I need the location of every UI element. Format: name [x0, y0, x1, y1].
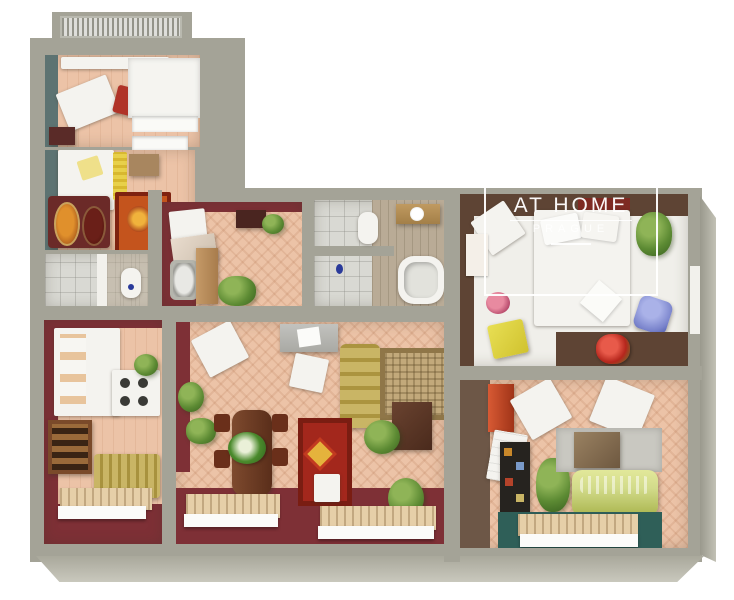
kitchen-plant [134, 354, 158, 376]
wall-living-right [444, 188, 460, 562]
dresser-mirror-2 [82, 206, 106, 246]
office-green-sofa [572, 470, 658, 516]
floorplan-render: AT HOME PRAGUE [0, 0, 734, 600]
shelf-item-4 [516, 494, 524, 502]
shelf-item-1 [504, 448, 512, 456]
wall-kitchen-living [162, 320, 176, 544]
room-bathroom [314, 200, 446, 307]
wall-hallway-bathroom [302, 196, 314, 308]
office-wall-cabinet [574, 432, 620, 468]
stove-burner-2 [138, 378, 148, 388]
wall-bedroom-office [452, 366, 702, 380]
living-sill-left [184, 514, 278, 527]
bedroom-main-red-flowers [596, 334, 630, 364]
dining-chair-4 [272, 448, 288, 466]
room-hallway [162, 202, 302, 306]
study-shelf [49, 127, 75, 145]
bedroom-main-blue-chair [632, 294, 675, 337]
watermark-frame: AT HOME PRAGUE [484, 184, 658, 296]
watermark-subtitle: PRAGUE [533, 223, 609, 235]
shelf-item-2 [516, 462, 524, 470]
living-plant-sofa [364, 420, 400, 454]
stove-burner-1 [120, 378, 130, 388]
dresser-mirror-1 [54, 202, 80, 246]
living-desk-chair [289, 353, 329, 393]
watermark-title: AT HOME [510, 194, 633, 221]
hallway-mirror [170, 260, 198, 300]
watermark-dash [551, 243, 591, 245]
bedroom-small-dresser [48, 196, 110, 248]
living-gold-sofa [340, 344, 380, 428]
hallway-wardrobe [196, 248, 218, 304]
dining-chair-3 [272, 414, 288, 432]
room-wc [45, 254, 160, 308]
bottom-wall-bevel [36, 556, 704, 582]
office-black-shelf [500, 442, 530, 514]
dining-centerpiece-flowers [228, 432, 266, 464]
kitchen-cabinets [54, 328, 120, 416]
office-rug-striped [518, 514, 638, 536]
shelf-item-3 [505, 478, 513, 486]
living-small-armchair [314, 474, 340, 502]
dining-chair-2 [214, 450, 230, 468]
bedroom-main-left-wall [460, 194, 474, 366]
tower-closet-shelf-2 [132, 136, 188, 150]
bathroom-partition [314, 246, 394, 256]
bathtub-inner [404, 262, 438, 298]
wall-tower-hallway [148, 190, 162, 310]
bathroom-bathtub [398, 256, 444, 304]
kitchen-drawer-fronts [60, 334, 86, 404]
office-red-cabinet [488, 384, 514, 432]
living-sill-right [318, 526, 434, 539]
living-armchair-top [191, 322, 250, 378]
study-desk [55, 74, 120, 131]
wc-toilet [121, 268, 141, 298]
right-wall-window [690, 266, 700, 334]
balcony-railing [60, 16, 182, 38]
green-sofa-back [580, 476, 650, 494]
hallway-shelf-plant [262, 214, 284, 234]
wall-mid-horizontal [30, 306, 454, 320]
living-laptop [297, 327, 321, 348]
hallway-plant [218, 276, 256, 306]
living-plant-left-2 [186, 418, 216, 444]
bathroom-sink-basin [410, 207, 424, 221]
wc-toilet-lid-dot [128, 284, 134, 290]
room-kitchen [44, 320, 162, 544]
bedroom-small-side-table [129, 154, 159, 176]
bathroom-blue-item [336, 264, 343, 274]
bedroom-main-yellow-stool [487, 319, 529, 360]
tower-closet [128, 58, 200, 118]
living-gray-desk [280, 324, 338, 352]
office-left-wall [460, 380, 490, 548]
stove-burner-4 [138, 396, 148, 406]
red-rug-medallion [307, 441, 332, 466]
wc-partition [97, 254, 107, 308]
kitchen-stove [112, 370, 160, 416]
office-window-sill [520, 534, 638, 547]
room-office [460, 380, 688, 548]
kitchen-window-sill [58, 506, 146, 519]
living-plant-left-1 [178, 382, 204, 412]
wine-bottles [52, 424, 88, 470]
dining-chair-1 [214, 414, 230, 432]
bathroom-toilet [358, 212, 378, 244]
bathroom-sink-counter [396, 204, 440, 224]
right-wall-bevel [700, 196, 716, 562]
room-living [176, 322, 444, 544]
stove-burner-3 [120, 396, 130, 406]
kitchen-wine-rack [48, 420, 92, 474]
tower-closet-shelf-1 [132, 116, 198, 132]
